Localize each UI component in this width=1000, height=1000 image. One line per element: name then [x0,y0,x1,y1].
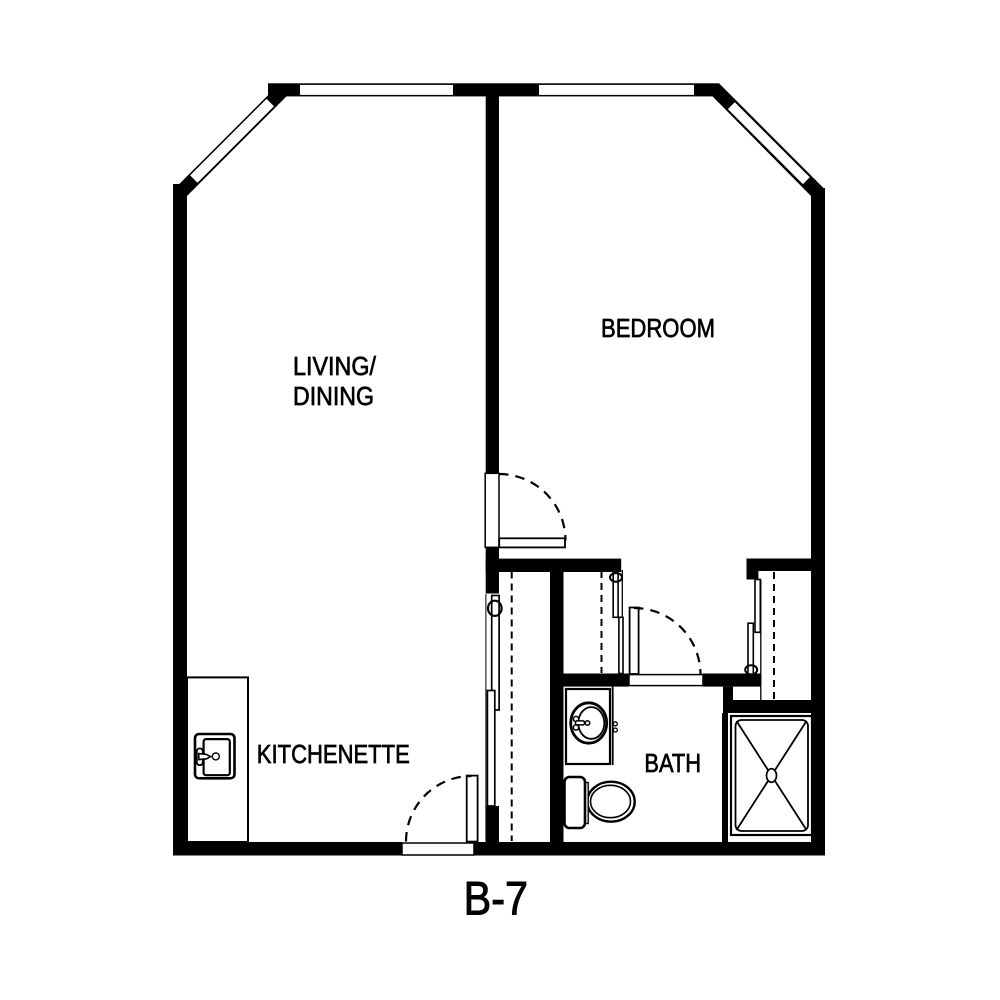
svg-text:LIVING/: LIVING/ [293,351,377,381]
svg-text:DINING: DINING [293,381,374,411]
svg-text:BEDROOM: BEDROOM [601,313,715,343]
svg-text:B-7: B-7 [464,872,528,925]
svg-text:BATH: BATH [644,748,701,778]
svg-text:KITCHENETTE: KITCHENETTE [257,739,410,769]
